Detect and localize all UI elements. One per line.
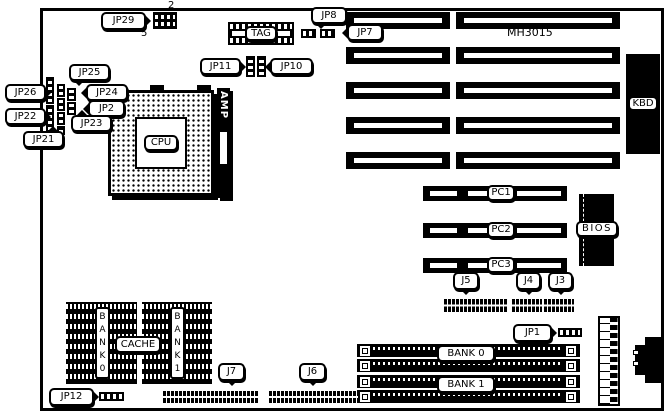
- jp24-pins: [69, 90, 74, 99]
- pci-slot-pc2: PC2: [423, 223, 567, 238]
- kbd-label: KBD: [628, 96, 658, 111]
- jp29-pins-row1: [155, 15, 175, 19]
- tag-mid-stripe-right: [276, 31, 290, 36]
- j5-label-text: J5: [461, 276, 470, 286]
- jp23-pins: [59, 114, 63, 123]
- jp11-label: JP11: [200, 58, 241, 75]
- jp1-label: JP1: [513, 324, 552, 342]
- j3-pointer: [554, 288, 568, 295]
- jp11-label-text: JP11: [210, 62, 232, 72]
- jp7-jumper-block: [320, 29, 335, 38]
- jp23-pointer: [75, 110, 89, 117]
- pc2-label: PC2: [487, 222, 515, 238]
- cache-bank0-label: BANK0: [95, 307, 110, 379]
- jp25-label-text: JP25: [79, 68, 101, 78]
- jp8-pins: [303, 31, 314, 36]
- j3-label-text: J3: [556, 276, 565, 286]
- jp29-pin2-annotation: 2: [168, 0, 174, 11]
- jp2-pins: [69, 104, 74, 113]
- isa-slot-4-right: [456, 117, 620, 134]
- jp12-label-text: JP12: [61, 392, 83, 402]
- jp10-pins: [259, 58, 264, 75]
- jp1-pins: [560, 330, 580, 335]
- tag-chip-label: TAG: [245, 26, 277, 41]
- jp29-pins-row2: [155, 22, 175, 26]
- simm-bank0-label: BANK 0: [437, 345, 495, 362]
- jp12-pointer: [92, 390, 99, 404]
- j3-label: J3: [548, 272, 573, 290]
- jp25-label: JP25: [69, 64, 110, 81]
- j4-header: [512, 299, 542, 312]
- simm-bank1-label-text: BANK 1: [447, 380, 484, 390]
- isa-slot-5-right: [456, 152, 620, 169]
- jp24-label-text: JP24: [96, 88, 118, 98]
- tag-mid-stripe-left: [232, 31, 246, 36]
- cpu-label: CPU: [144, 135, 178, 151]
- jp12-jumper-block: [99, 392, 124, 401]
- jp8-label-text: JP8: [321, 11, 336, 21]
- jp10-pointer: [265, 60, 272, 74]
- motherboard-diagram: JP29 2 5 TAG JP8 JP7 MH3015: [0, 0, 667, 416]
- j6-pointer: [306, 379, 320, 386]
- jp11-jumper-block: [246, 56, 255, 77]
- jp8-label: JP8: [311, 7, 347, 24]
- jp11-pins: [248, 58, 253, 75]
- jp23-label: JP23: [71, 115, 112, 132]
- bios-label: BIOS: [576, 221, 618, 237]
- pc2-label-text: PC2: [491, 225, 510, 235]
- left-jumper-block-2: [57, 98, 65, 111]
- j5-pointer: [459, 288, 473, 295]
- amp-label-text: AMP: [218, 91, 229, 119]
- jp21-label: JP21: [23, 131, 64, 148]
- kbd-label-text: KBD: [632, 99, 653, 109]
- j3-header: [544, 299, 574, 312]
- j7-label: J7: [218, 363, 245, 381]
- j4-label: J4: [516, 272, 541, 290]
- pc1-label-text: PC1: [491, 188, 510, 198]
- jp25-jumper-block: [57, 84, 65, 97]
- pc3-label-text: PC3: [491, 260, 510, 270]
- jp22-label: JP22: [5, 108, 46, 125]
- edge-connector-notch-1: [633, 350, 639, 355]
- jp26-label-text: JP26: [15, 88, 37, 98]
- jp10-label: JP10: [270, 58, 313, 75]
- simm-bank0-label-text: BANK 0: [447, 349, 484, 359]
- amp-slot: [220, 132, 227, 164]
- jp26-label: JP26: [5, 84, 46, 101]
- jp26-pointer: [44, 86, 51, 100]
- j5-header: [444, 299, 508, 312]
- j6-label-text: J6: [308, 367, 317, 377]
- jp1-jumper-block: [558, 328, 582, 337]
- jp8-jumper-block: [301, 29, 316, 38]
- isa-slot-2-right: [456, 47, 620, 64]
- jp23-label-text: JP23: [81, 119, 103, 129]
- j6-header: [269, 391, 358, 403]
- jp7-pins: [322, 31, 333, 36]
- cache-bank1-label: BANK1: [170, 307, 185, 379]
- isa-slot-3-right: [456, 82, 620, 99]
- jp29-label: JP29: [101, 12, 146, 30]
- j7-pointer: [225, 379, 239, 386]
- j7-header: [163, 391, 258, 403]
- jp2-label-text: JP2: [99, 104, 114, 114]
- isa-slot-4-left: [346, 117, 450, 134]
- jp21-label-text: JP21: [33, 135, 55, 145]
- tag-chip-label-text: TAG: [251, 29, 271, 39]
- jp12-pins: [101, 394, 122, 399]
- isa-slot-5-left: [346, 152, 450, 169]
- cpu-socket-center: CPU: [135, 117, 187, 169]
- j7-label-text: J7: [227, 367, 236, 377]
- jp29-jumper-block: [153, 12, 177, 29]
- j4-pointer: [522, 288, 536, 295]
- jp1-pointer: [550, 326, 557, 340]
- pc3-label: PC3: [487, 257, 515, 273]
- j6-label: J6: [299, 363, 326, 381]
- jp8-pointer: [314, 22, 328, 29]
- edge-connector-notch-2: [633, 361, 639, 366]
- chipset-text: MH3015: [507, 27, 553, 39]
- jp10-label-text: JP10: [281, 62, 303, 72]
- jp22-pointer: [44, 110, 51, 124]
- edge-connector-body: [645, 337, 664, 383]
- jp7-label-text: JP7: [357, 28, 372, 38]
- pci-slot-pc1: PC1: [423, 186, 567, 201]
- jp24-label: JP24: [86, 84, 128, 101]
- j5-label: J5: [453, 272, 479, 290]
- jp22-label-text: JP22: [15, 112, 37, 122]
- left-jumper-block-2-pins: [59, 100, 63, 109]
- isa-slot-3-left: [346, 82, 450, 99]
- jp29-label-text: JP29: [113, 16, 135, 26]
- jp23-jumper-block: [57, 112, 65, 125]
- pc1-label: PC1: [487, 185, 515, 201]
- kbd-connector: KBD: [626, 54, 660, 154]
- power-connector: [598, 316, 620, 406]
- jp7-pointer: [342, 26, 349, 40]
- jp12-label: JP12: [49, 388, 94, 406]
- jp11-pointer: [239, 60, 246, 74]
- jp24-pointer: [81, 86, 88, 100]
- bios-label-text: BIOS: [582, 224, 612, 234]
- pci-slot-pc3: PC3: [423, 258, 567, 273]
- amp-support-bracket: AMP: [217, 88, 230, 198]
- jp29-pin5-annotation: 5: [141, 28, 147, 39]
- jp24-jumper-block: [67, 88, 76, 101]
- cpu-label-text: CPU: [151, 138, 171, 148]
- jp7-label: JP7: [347, 24, 383, 41]
- isa-slot-2-left: [346, 47, 450, 64]
- jp25-pins: [59, 86, 63, 95]
- jp1-label-text: JP1: [525, 328, 540, 338]
- jp29-pointer: [144, 14, 151, 28]
- simm-bank1-label: BANK 1: [437, 376, 495, 393]
- j4-label-text: J4: [524, 276, 533, 286]
- jp21-pointer: [46, 126, 60, 133]
- cache-label-text: CACHE: [121, 340, 155, 350]
- tag-chip: TAG: [228, 22, 294, 45]
- cache-label: CACHE: [115, 336, 161, 353]
